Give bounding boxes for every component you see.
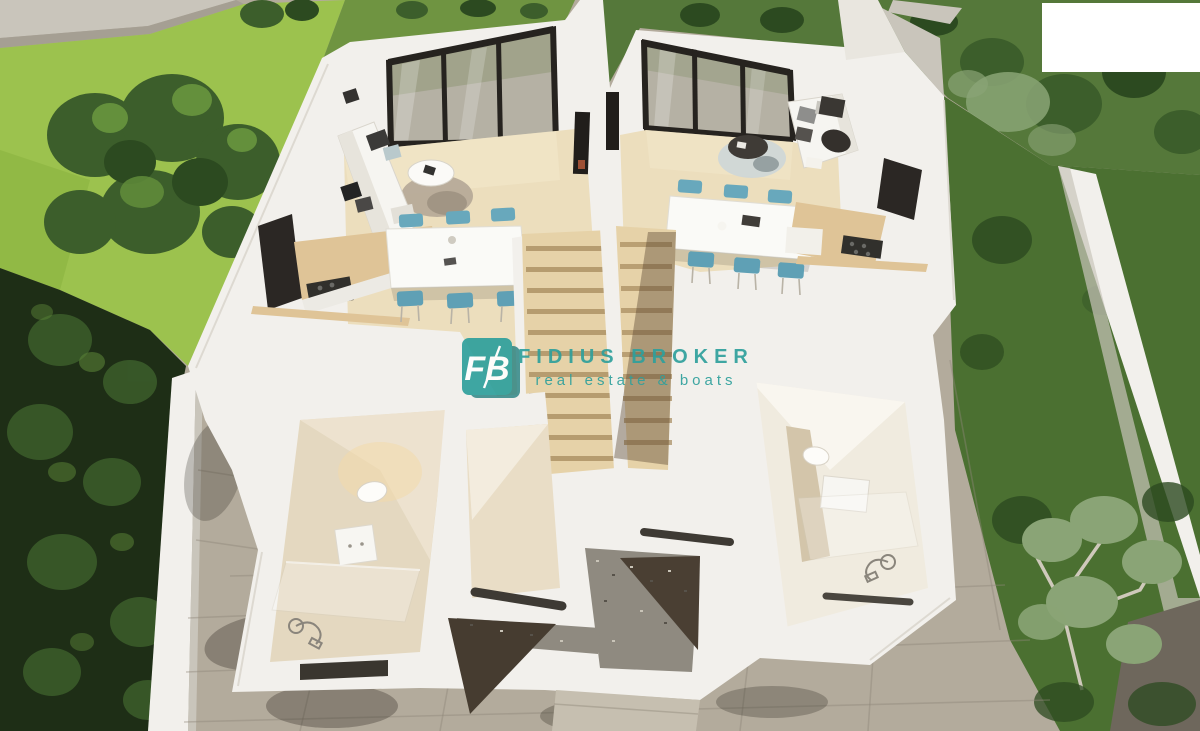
burner — [850, 242, 854, 246]
bush — [520, 3, 548, 19]
vanity-left — [335, 525, 378, 566]
burner — [862, 244, 866, 248]
coffee-table-right — [728, 135, 768, 159]
floorplan-3d-render: FB FIDIUS BROKER real estate & boats — [0, 0, 1200, 731]
bathroom-right — [740, 378, 928, 634]
top-right-blank-patch — [1042, 3, 1200, 72]
fireplace-ember — [578, 160, 585, 169]
burner — [330, 283, 335, 288]
burner — [854, 250, 858, 254]
watermark-subtitle: real estate & boats — [535, 372, 736, 389]
render-stage: FB FIDIUS BROKER real estate & boats — [0, 0, 1200, 731]
burner — [866, 252, 870, 256]
rug-shade — [753, 156, 779, 172]
table-dish — [448, 236, 456, 244]
vanity-handle — [360, 542, 364, 546]
watermark-title: FIDIUS BROKER — [518, 346, 754, 368]
table-vase — [718, 222, 727, 231]
kitchen-island-right — [785, 227, 823, 255]
vanity-handle — [348, 544, 352, 548]
bush — [396, 1, 428, 19]
dining-table-left — [386, 226, 526, 288]
fireplace-right — [606, 92, 619, 150]
burner — [318, 286, 323, 291]
